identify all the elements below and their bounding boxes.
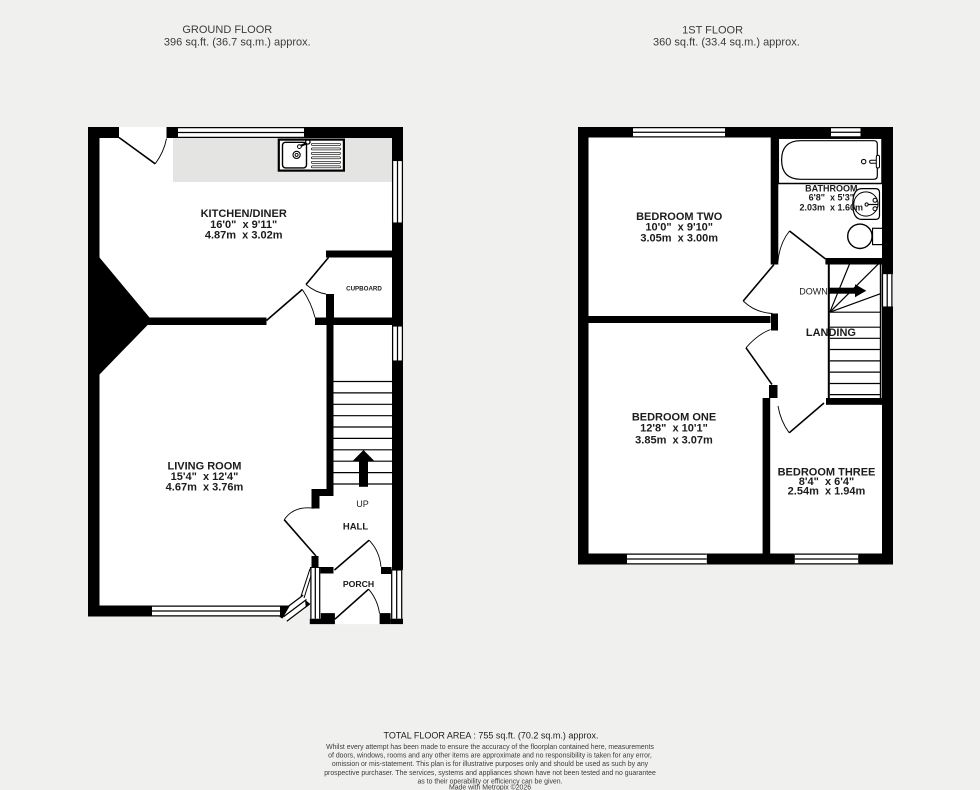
svg-text:UP: UP: [356, 499, 369, 509]
svg-text:TOTAL FLOOR AREA : 755 sq.ft.: TOTAL FLOOR AREA : 755 sq.ft. (70.2 sq.m…: [384, 730, 599, 740]
svg-text:3.85m x 3.07m: 3.85m x 3.07m: [635, 434, 713, 446]
svg-text:3.05m x 3.00m: 3.05m x 3.00m: [640, 232, 718, 244]
svg-text:GROUND FLOOR: GROUND FLOOR: [182, 24, 272, 36]
svg-text:Whilst every attempt has been: Whilst every attempt has been made to en…: [326, 744, 654, 751]
svg-text:KITCHEN/DINER: KITCHEN/DINER: [201, 208, 287, 220]
svg-text:2.03m x 1.60m: 2.03m x 1.60m: [800, 202, 864, 212]
svg-text:DOWN: DOWN: [799, 286, 828, 296]
svg-text:omission or mis-statement. Thi: omission or mis-statement. This plan is …: [332, 761, 649, 768]
svg-text:prospective purchaser. The ser: prospective purchaser. The services, sys…: [324, 770, 656, 777]
svg-text:396 sq.ft. (36.7 sq.m.) approx: 396 sq.ft. (36.7 sq.m.) approx.: [164, 36, 311, 48]
svg-text:CUPBOARD: CUPBOARD: [346, 285, 382, 292]
svg-text:LANDING: LANDING: [806, 327, 856, 339]
svg-text:BEDROOM ONE: BEDROOM ONE: [632, 411, 716, 423]
svg-text:360 sq.ft. (33.4 sq.m.) approx: 360 sq.ft. (33.4 sq.m.) approx.: [653, 37, 800, 49]
svg-text:4.87m x 3.02m: 4.87m x 3.02m: [205, 230, 283, 242]
svg-text:of doors, windows, rooms and a: of doors, windows, rooms and any other i…: [328, 753, 652, 760]
svg-text:4.67m x 3.76m: 4.67m x 3.76m: [166, 481, 244, 493]
svg-text:12'8" x 10'1": 12'8" x 10'1": [640, 423, 708, 435]
svg-text:HALL: HALL: [343, 522, 369, 533]
svg-text:6'8" x 5'3": 6'8" x 5'3": [809, 193, 854, 203]
svg-text:2.54m x 1.94m: 2.54m x 1.94m: [788, 485, 866, 497]
svg-text:PORCH: PORCH: [343, 579, 374, 589]
svg-text:1ST FLOOR: 1ST FLOOR: [682, 24, 743, 36]
svg-text:Made with Metropix ©2026: Made with Metropix ©2026: [449, 784, 531, 790]
